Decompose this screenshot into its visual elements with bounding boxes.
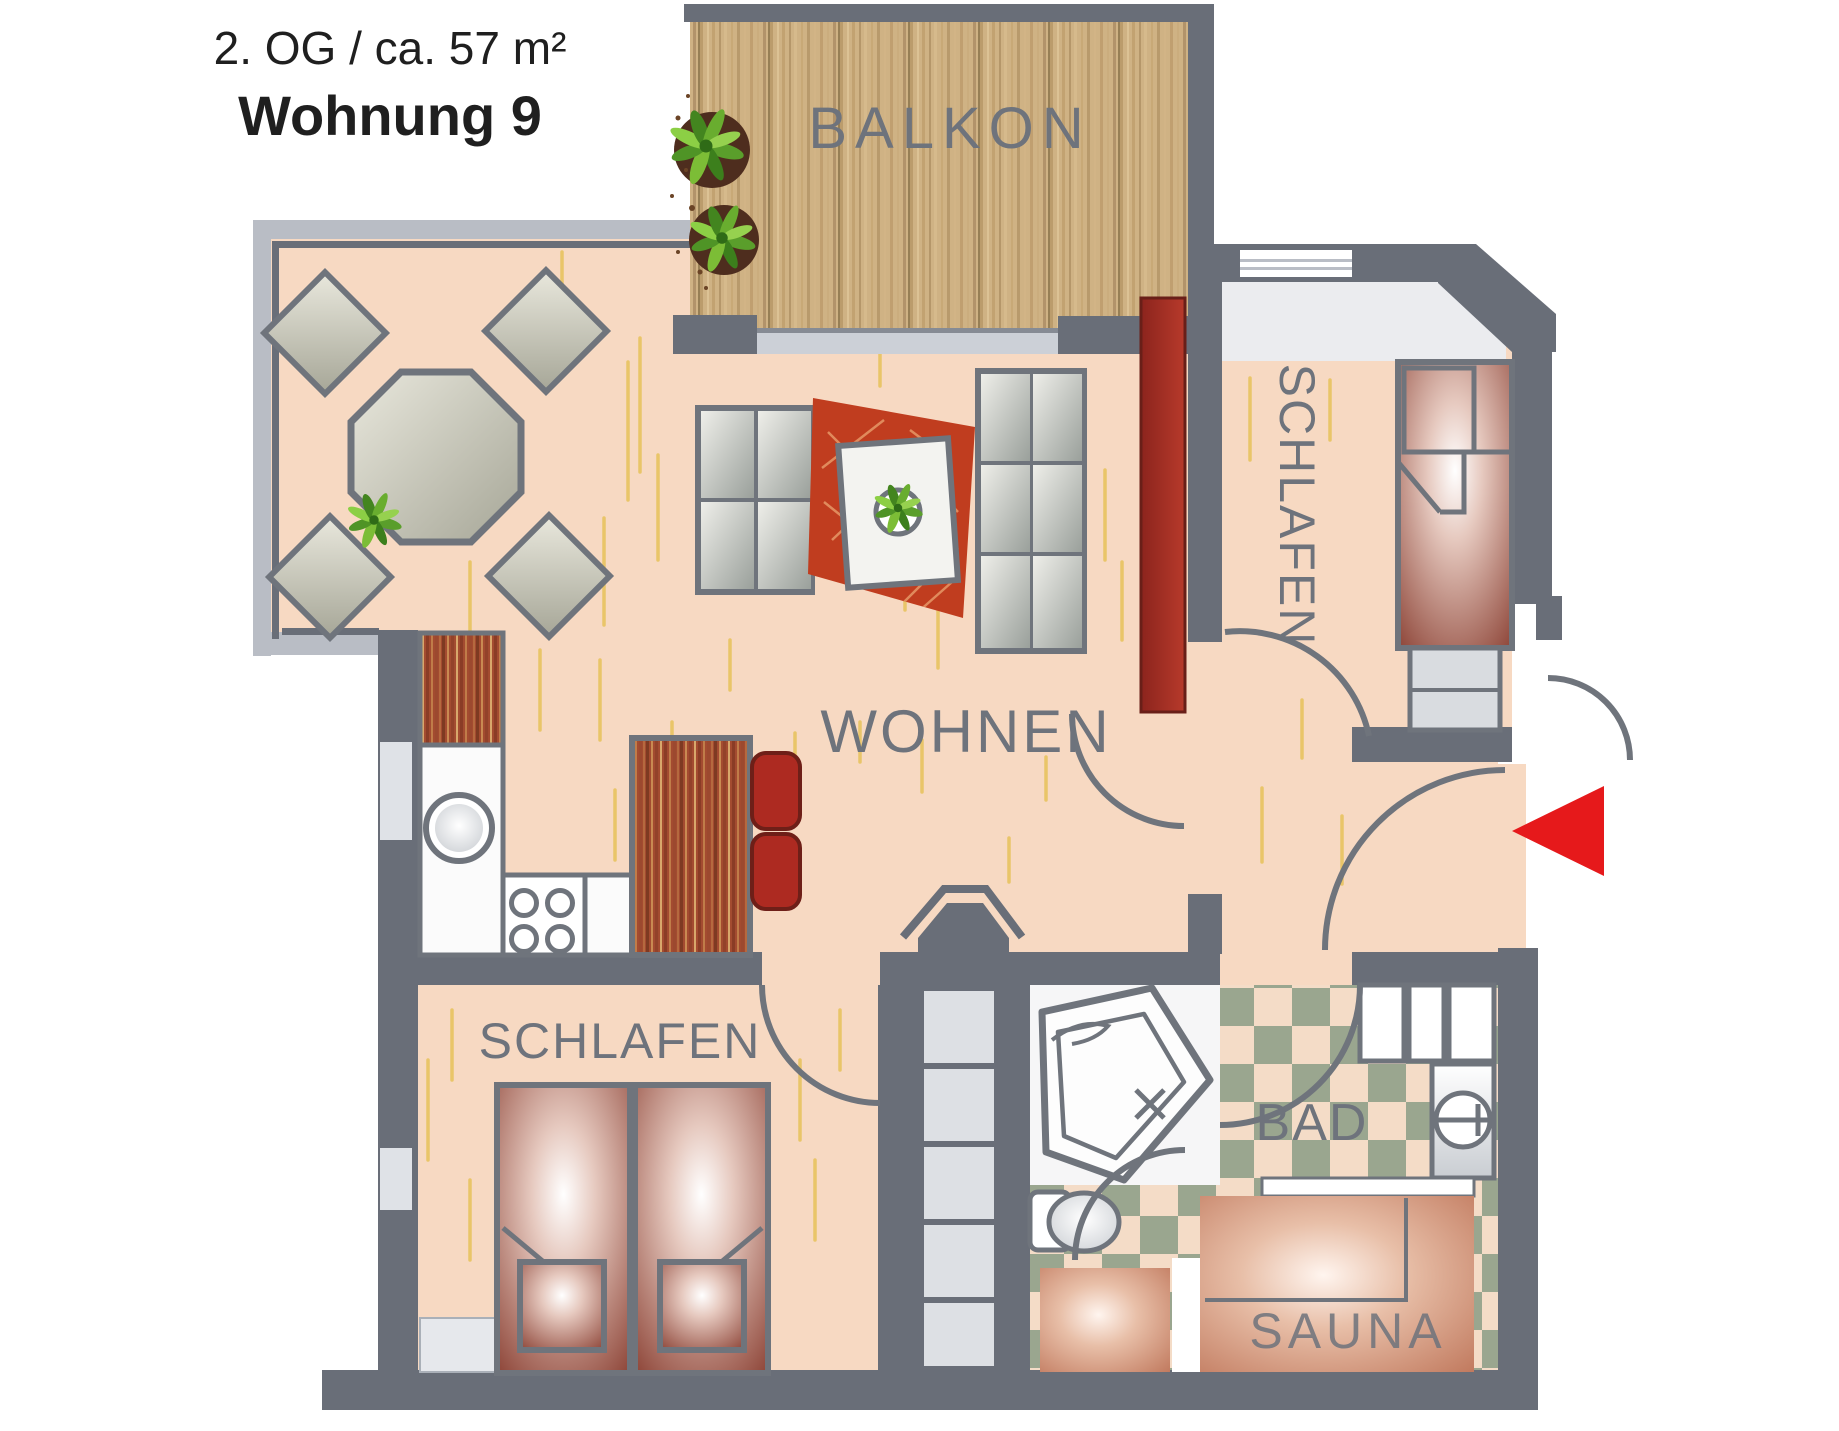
label-balkon: BALKON (808, 96, 1091, 161)
bath-shelves (1360, 985, 1494, 1061)
plan-title: 2. OG / ca. 57 m² Wohnung 9 (180, 22, 600, 148)
kitchen-cabinet (420, 633, 503, 745)
sauna-bench-small (1040, 1268, 1170, 1372)
pillow (520, 1262, 604, 1350)
apartment-name-label: Wohnung 9 (180, 83, 600, 148)
floor-and-area-label: 2. OG / ca. 57 m² (180, 22, 600, 75)
label-wohnen: WOHNEN (820, 698, 1111, 765)
threshold-entrance (1498, 764, 1526, 948)
kitchen-chair (752, 834, 800, 909)
wardrobe-cabinets (918, 985, 1000, 1372)
kitchen-table (632, 738, 750, 955)
floor-hall-opening (1188, 640, 1222, 896)
balcony-deck (690, 6, 1188, 332)
label-sauna: SAUNA (1249, 1303, 1446, 1359)
label-bad: BAD (1256, 1094, 1369, 1152)
pillow (660, 1262, 744, 1350)
label-schlafen-top: SCHLAFEN (1269, 364, 1325, 647)
sofa-large (975, 368, 1087, 654)
window-kitchen (380, 742, 412, 840)
label-schlafen-bottom: SCHLAFEN (479, 1013, 762, 1069)
window-bedroom-top (1240, 250, 1352, 277)
sink-icon (426, 795, 492, 861)
washbasin-icon (1432, 1064, 1496, 1178)
sauna-step (1262, 1178, 1474, 1196)
kitchen-worktop (585, 875, 633, 955)
bedroom-top-furniture (1398, 362, 1512, 730)
floorplan-svg: BALKON WOHNEN SCHLAFEN SCHLAFEN BAD SAUN… (0, 0, 1839, 1431)
threshold-bedroom (762, 952, 880, 985)
window-bedroom-bottom (380, 1148, 412, 1210)
sofa-small (695, 405, 815, 595)
sideboard (1141, 298, 1185, 712)
kitchen-chair (752, 753, 800, 829)
door-arc-exterior (1548, 678, 1630, 760)
sauna-divider (1172, 1258, 1200, 1372)
bed-top-right (1398, 362, 1512, 648)
floorplan-canvas: 2. OG / ca. 57 m² Wohnung 9 (0, 0, 1839, 1431)
bedroom-bottom-furniture (497, 1085, 768, 1373)
threshold-bathroom (1220, 952, 1352, 985)
